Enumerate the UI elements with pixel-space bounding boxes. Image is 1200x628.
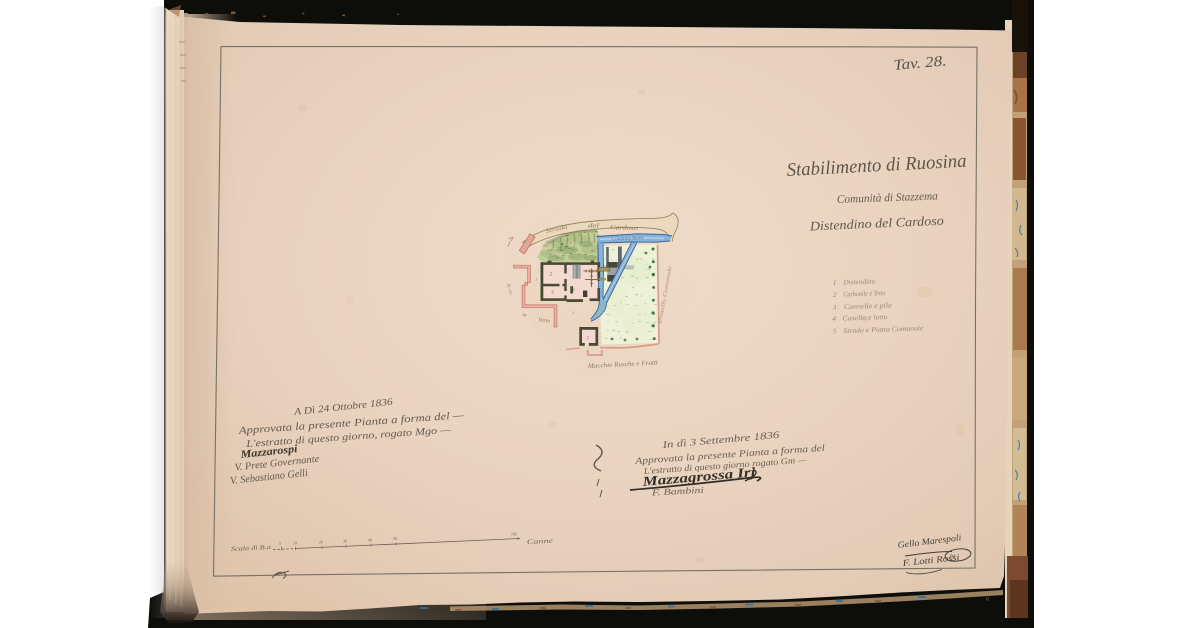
svg-text:40: 40 [368,538,372,542]
svg-text:Carbonile e Tetto: Carbonile e Tetto [843,289,886,298]
svg-text:del: del [588,224,599,230]
svg-text:Distendino: Distendino [842,277,876,286]
svg-text:Cardoso: Cardoso [610,225,638,232]
svg-text:Canne: Canne [527,538,553,546]
svg-text:6: 6 [986,597,989,603]
svg-text:10: 10 [293,542,297,546]
svg-text:100: 100 [511,533,517,537]
svg-text:2: 2 [550,272,553,278]
svg-text:Cannelle e pila: Cannelle e pila [844,301,893,311]
svg-text:Casello e letto: Casello e letto [842,313,888,323]
svg-text:50: 50 [393,537,397,541]
svg-text:1: 1 [833,279,837,287]
svg-text:5: 5 [279,542,281,546]
svg-text:1: 1 [573,287,576,293]
svg-text:3: 3 [832,303,837,311]
svg-text:3: 3 [550,290,554,296]
svg-text:30: 30 [343,539,347,543]
svg-text:20: 20 [319,541,323,545]
svg-text:1: 1 [535,277,537,282]
